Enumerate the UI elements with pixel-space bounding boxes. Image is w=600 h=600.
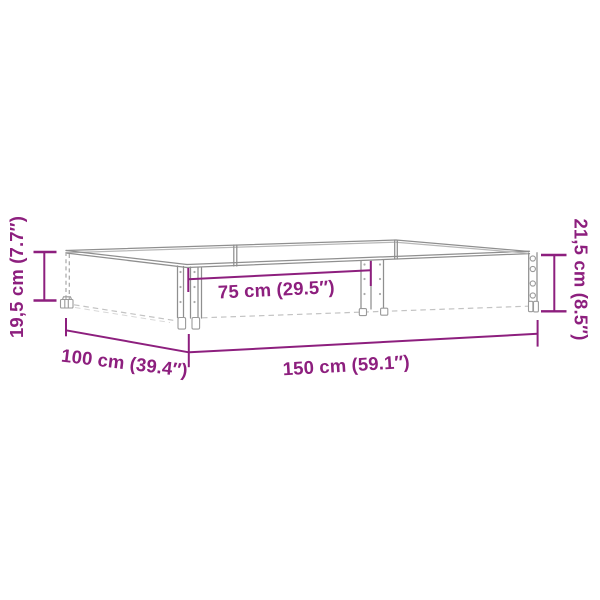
svg-text:100 cm (39.4″): 100 cm (39.4″) [60,345,189,381]
svg-text:19,5 cm (7.7″): 19,5 cm (7.7″) [6,216,27,338]
svg-text:75 cm (29.5″): 75 cm (29.5″) [217,276,335,302]
svg-text:150 cm (59.1″): 150 cm (59.1″) [282,351,410,380]
svg-text:21,5 cm (8.5″): 21,5 cm (8.5″) [570,218,591,340]
